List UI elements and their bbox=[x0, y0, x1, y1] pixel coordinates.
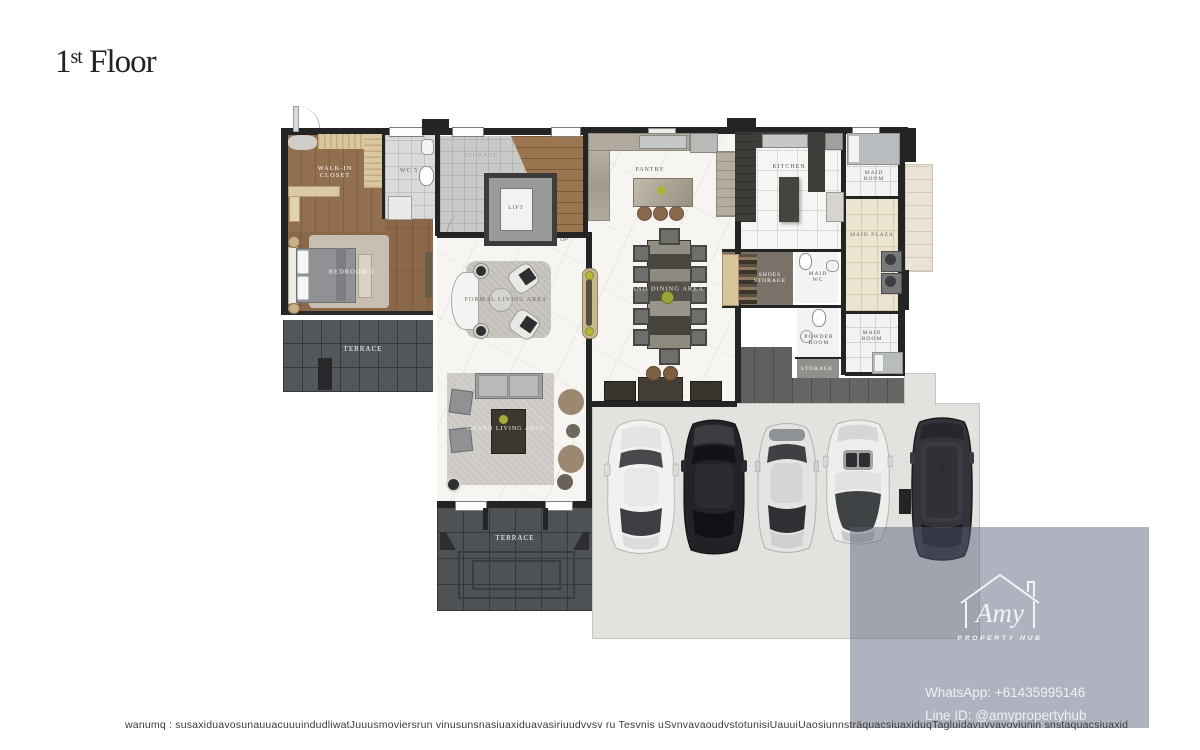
svg-text:Amy: Amy bbox=[974, 598, 1024, 628]
svg-text:PROPERTY HUB: PROPERTY HUB bbox=[958, 635, 1043, 642]
